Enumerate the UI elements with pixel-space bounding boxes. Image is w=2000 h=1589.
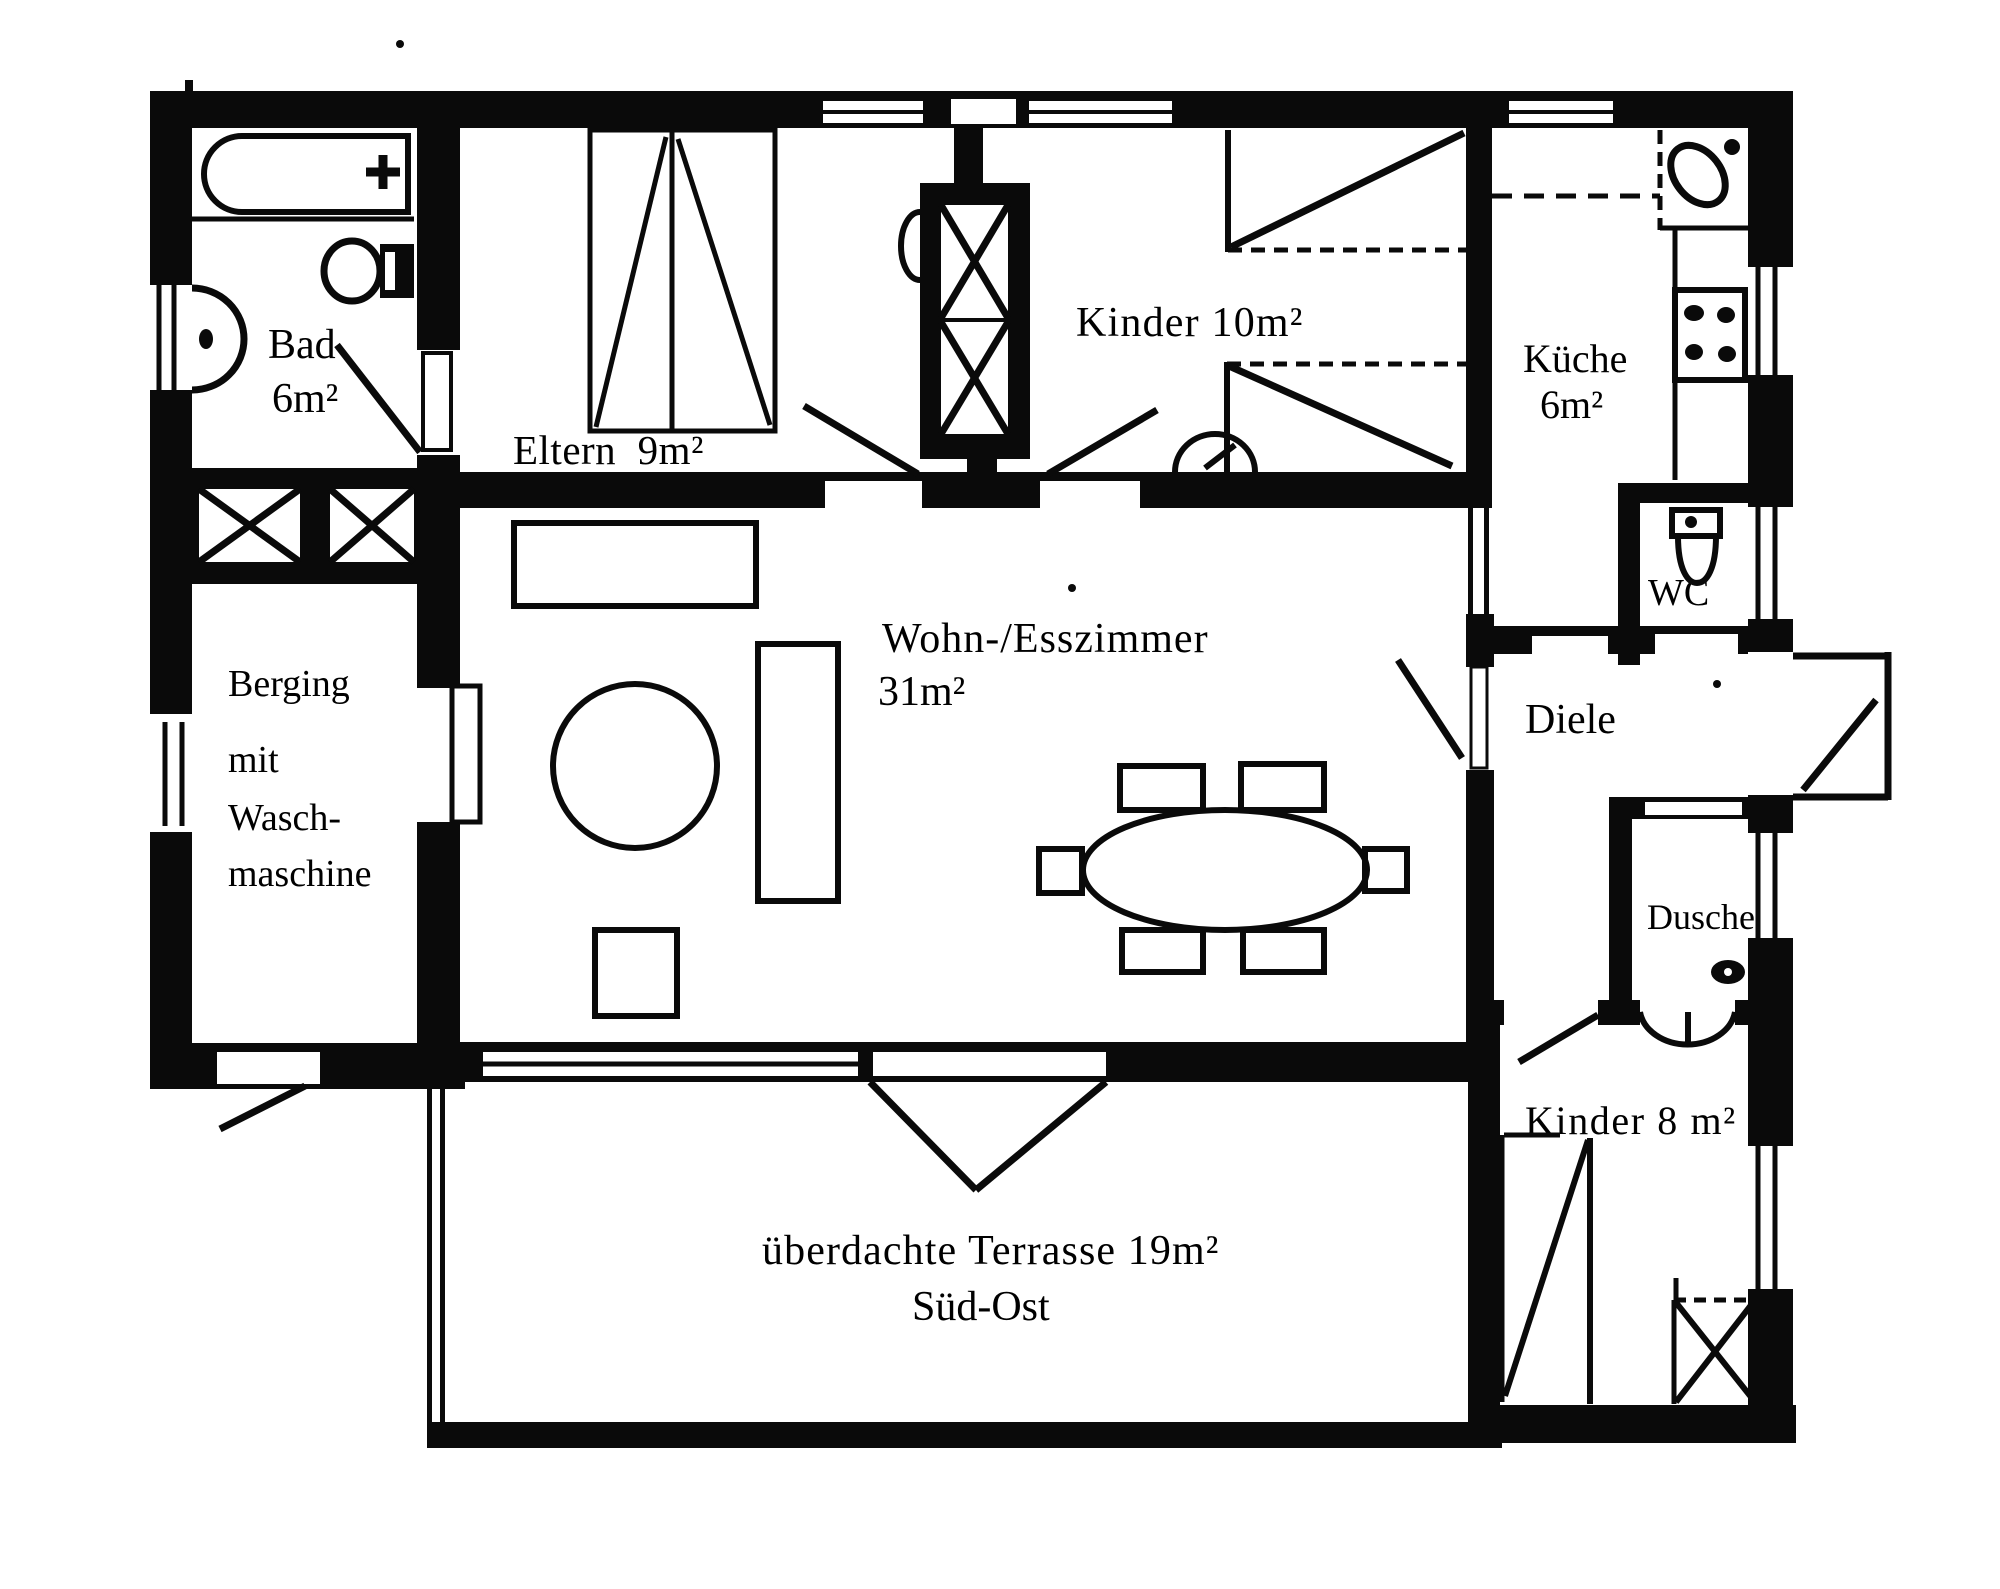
svg-text:Berging: Berging xyxy=(228,663,350,705)
svg-text:6m²: 6m² xyxy=(1540,382,1603,427)
svg-text:mit: mit xyxy=(228,739,279,781)
svg-text:Kinder 10m²: Kinder 10m² xyxy=(1076,300,1304,346)
svg-text:Dusche: Dusche xyxy=(1647,897,1755,937)
svg-text:Wohn-/Esszimmer: Wohn-/Esszimmer xyxy=(882,616,1209,662)
svg-text:maschine: maschine xyxy=(228,853,372,895)
svg-text:WC: WC xyxy=(1648,572,1709,614)
svg-text:Wasch-: Wasch- xyxy=(228,797,341,839)
svg-text:Küche: Küche xyxy=(1523,336,1627,381)
svg-text:31m²: 31m² xyxy=(878,669,965,715)
svg-text:Eltern 9m²: Eltern 9m² xyxy=(513,427,704,473)
svg-text:Süd-Ost: Süd-Ost xyxy=(912,1284,1050,1330)
svg-text:Diele: Diele xyxy=(1525,697,1616,743)
svg-text:Bad: Bad xyxy=(268,322,336,368)
svg-text:6m²: 6m² xyxy=(272,376,338,422)
svg-text:überdachte Terrasse 19m²: überdachte Terrasse 19m² xyxy=(762,1228,1219,1274)
